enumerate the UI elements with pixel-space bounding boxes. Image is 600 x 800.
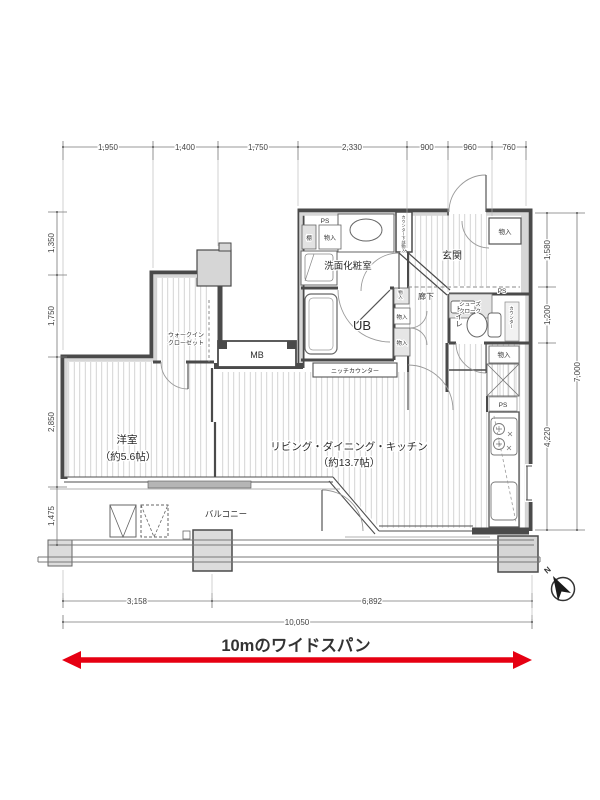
balcony-drain [183, 531, 190, 539]
wide-span-banner: 10mのワイドスパン [62, 636, 532, 669]
pillar-notch [219, 243, 231, 251]
dim-right-3: 4,220 [543, 426, 552, 447]
north-label: N [543, 565, 553, 576]
dim-left-1: 1,350 [47, 232, 56, 253]
storage-label-1: 物入 [398, 289, 404, 300]
ac-unit-dashed [141, 505, 168, 537]
dim-top-2: 1,400 [175, 143, 196, 152]
wide-span-text: 10mのワイドスパン [221, 636, 370, 655]
wide-span-arrowhead-left [62, 651, 81, 669]
mb-cap-left [218, 341, 227, 349]
bathtub [305, 294, 337, 354]
top-ticks [63, 141, 526, 160]
toilet-tank [488, 313, 501, 337]
storage-label-3: 物入 [396, 339, 408, 347]
dim-bottom-1: 3,158 [127, 597, 148, 606]
balcony-divider-block [498, 536, 538, 572]
bedroom-label: 洋室 [117, 433, 138, 446]
balcony-rail-lines [38, 540, 540, 562]
washroom-label: 洗面化粧室 [324, 260, 372, 272]
floorplan-page: 洋室 （約5.6帖） リビング・ダイニング・キッチン （約13.7帖） 洗面化粧… [0, 0, 600, 800]
floorplan-drawing: 洋室 （約5.6帖） リビング・ダイニング・キッチン （約13.7帖） 洗面化粧… [0, 0, 600, 800]
bottom-extension-lines [63, 570, 532, 619]
shoes-closet-label-line2: クローク [459, 308, 481, 315]
wide-span-arrowhead-right [513, 651, 532, 669]
wic-label-line2: クローゼット [168, 339, 204, 347]
pillar-block-north [197, 250, 231, 286]
storage-label-kitchen: 物入 [498, 350, 512, 359]
wic-label-line1: ウォークイン [168, 331, 204, 339]
dim-right-1: 1,580 [543, 239, 552, 260]
counter-label-toilet: カウンター [509, 306, 515, 329]
ldk-size-label: （約13.7帖） [318, 456, 380, 469]
washroom-door-arc [361, 253, 399, 291]
balcony-label: バルコニー [205, 509, 247, 519]
ac-unit-solid [110, 505, 136, 537]
dim-top-3: 1,750 [248, 143, 269, 152]
kitchen-door-gap [525, 464, 533, 502]
dim-top-6: 960 [463, 143, 477, 152]
shoes-closet-label-line1: シューズ [459, 300, 481, 308]
left-dim-labels: 1,350 1,750 2,850 1,475 [47, 232, 56, 526]
ps-label-toilet: PS [498, 288, 507, 295]
wic-floor [155, 278, 210, 362]
window-sill-block [148, 481, 251, 488]
dim-right-2: 1,200 [543, 304, 552, 325]
dim-top-1: 1,950 [98, 143, 119, 152]
wall-bedroom-ldk-divider [212, 368, 215, 477]
counter-under-storage-label: カウンター下部物入 [401, 215, 407, 254]
dim-left-4: 1,475 [47, 505, 56, 526]
dim-top-5: 900 [420, 143, 434, 152]
ps-label-kitchen: PS [499, 402, 508, 409]
entrance-label: 玄関 [442, 249, 462, 262]
toilet-bowl [467, 313, 487, 337]
balcony-pillar [193, 530, 232, 571]
meter-box-label: MB [250, 350, 264, 360]
storage-label-entrance: 物入 [499, 227, 513, 236]
niche-counter-label: ニッチカウンター [331, 367, 379, 375]
ps-label-washroom: PS [321, 218, 330, 225]
dim-top-4: 2,330 [342, 143, 363, 152]
storage-label-washroom: 物入 [324, 234, 336, 242]
storage-label-2: 物入 [396, 313, 408, 321]
unit-bath-label: UB [353, 318, 371, 333]
top-dim-labels: 1,950 1,400 1,750 2,330 900 960 760 [98, 143, 516, 152]
bedroom-size-label: （約5.6帖） [100, 450, 157, 463]
dim-bottom-2: 6,892 [362, 597, 383, 606]
ldk-label: リビング・ダイニング・キッチン [270, 440, 428, 453]
dim-right-total: 7,000 [573, 361, 582, 382]
dim-bottom-total: 10,050 [285, 618, 310, 627]
dim-left-3: 2,850 [47, 411, 56, 432]
mb-cap-right [287, 341, 296, 349]
dim-top-7: 760 [502, 143, 516, 152]
north-compass: N [543, 565, 575, 601]
vanity-basin [350, 219, 382, 241]
entrance-door-arc [449, 175, 486, 212]
dim-left-2: 1,750 [47, 305, 56, 326]
shelf-label: 棚 [306, 234, 312, 242]
bottom-dim-labels: 3,158 6,892 10,050 [127, 597, 383, 627]
hallway-label: 廊下 [418, 291, 434, 301]
